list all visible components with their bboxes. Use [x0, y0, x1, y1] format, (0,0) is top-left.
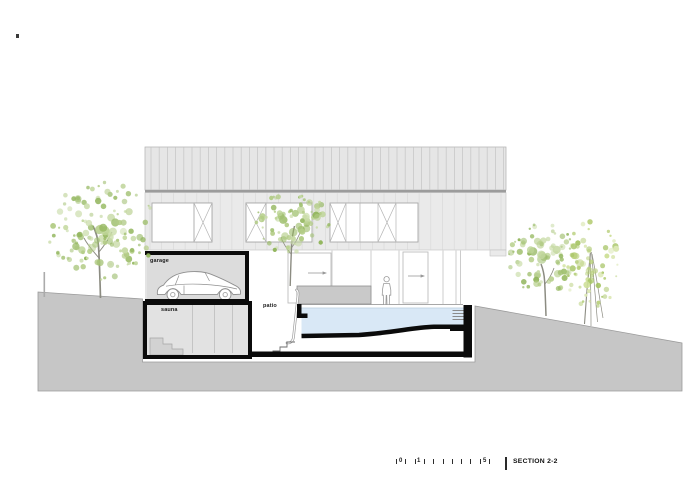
tree-foliage [124, 233, 127, 236]
tree-foliage [508, 265, 512, 269]
tree-foliage [61, 256, 65, 260]
garage-wall-right [245, 251, 249, 303]
tree-foliage [255, 221, 259, 225]
tree-foliage [116, 265, 119, 268]
tree-foliage [589, 260, 594, 265]
tree-foliage [257, 211, 259, 213]
tree-foliage [122, 247, 128, 253]
tree-foliage [584, 294, 587, 297]
tree-foliage [555, 260, 560, 265]
tree-foliage [86, 186, 90, 190]
tree-foliage [117, 213, 119, 215]
tree-foliage [56, 251, 60, 255]
tree-foliage [559, 254, 564, 259]
tree-foliage [613, 246, 619, 252]
ground-post [44, 272, 46, 297]
tree-foliage [260, 219, 263, 222]
tree-foliage [77, 232, 83, 238]
tree-foliage [570, 265, 576, 271]
ground-floor [288, 251, 463, 305]
tree-foliage [82, 219, 85, 222]
tree-foliage [48, 241, 51, 244]
tree-foliage [514, 241, 516, 243]
tree-foliage [562, 264, 565, 267]
tree-foliage [109, 263, 112, 266]
tree-foliage [529, 228, 531, 230]
tree-foliage [604, 254, 609, 259]
patio-label: patio [263, 304, 277, 310]
tree-foliage [52, 234, 56, 238]
tree-foliage [130, 248, 134, 252]
tree-foliage [290, 214, 294, 218]
scale-tick [424, 459, 425, 464]
tree-foliage [285, 223, 290, 228]
tree-foliage [520, 238, 527, 245]
tree-trunk [541, 264, 546, 316]
person-figure [382, 277, 391, 305]
tree-foliage [289, 209, 293, 213]
sliding-door-2 [403, 252, 428, 303]
tree-foliage [581, 222, 586, 227]
tree-foliage [603, 277, 606, 280]
tree-foliage [586, 246, 592, 252]
tree-foliage [576, 259, 584, 267]
tree-foliage [63, 193, 68, 198]
scale-tick [443, 459, 444, 464]
tree-foliage [274, 196, 277, 199]
section-title: SECTION 2-2 [513, 459, 558, 466]
tree-foliage [327, 223, 330, 226]
tree-foliage [299, 203, 303, 207]
tree-foliage [148, 205, 150, 207]
scale-bar: 015 [396, 455, 492, 469]
tree-foliage [73, 234, 76, 237]
tree-foliage [533, 280, 540, 287]
scale-tick [489, 459, 490, 464]
tree-foliage [126, 208, 133, 215]
tree-foliage [136, 234, 143, 241]
tree-foliage [527, 246, 534, 253]
tree-foliage [590, 271, 594, 275]
tree-foliage [508, 250, 514, 256]
tree-foliage [584, 245, 587, 248]
tree-foliage [314, 214, 321, 221]
tree-foliage [560, 234, 566, 240]
tree-foliage [267, 241, 272, 246]
scale-number: 0 [399, 458, 402, 464]
tree-foliage [75, 198, 81, 204]
tree-foliage [123, 236, 128, 241]
tree-foliage [615, 275, 617, 277]
tree-foliage [262, 226, 264, 228]
tree-foliage [587, 219, 592, 224]
tree-foliage [303, 198, 306, 201]
tree-foliage [596, 283, 601, 288]
tree-foliage [607, 230, 610, 233]
tree-foliage [274, 211, 276, 213]
tree-foliage [98, 185, 100, 187]
tree-foliage [80, 259, 84, 263]
tree-foliage [596, 304, 599, 307]
tree-foliage [574, 273, 577, 276]
tree-foliage [100, 215, 103, 218]
tree-right-1 [508, 224, 572, 317]
tree-foliage [294, 249, 298, 253]
tree-foliage [117, 220, 122, 225]
tree-foliage [270, 228, 274, 232]
tree-foliage [103, 181, 106, 184]
tree-foliage [113, 196, 117, 200]
tree-foliage [146, 253, 150, 257]
tree-foliage [586, 256, 590, 260]
tree-foliage [522, 286, 524, 288]
tree-foliage [564, 239, 569, 244]
tree-foliage [572, 232, 576, 236]
tree-foliage [603, 245, 608, 250]
tree-foliage [516, 272, 521, 277]
tree-foliage [601, 296, 603, 298]
tree-foliage [556, 286, 561, 291]
person-head [384, 277, 389, 282]
tree-foliage [84, 220, 88, 224]
tree-foliage [612, 239, 616, 243]
architectural-section-sheet: garage sauna patio 015 SECTION 2-2 [0, 0, 700, 495]
tree-foliage [529, 257, 535, 263]
tree-foliage [75, 242, 78, 245]
tree-foliage [73, 265, 79, 271]
person-body [382, 284, 391, 305]
tree-foliage [271, 205, 277, 211]
tree-foliage [537, 251, 546, 260]
tree-foliage [530, 234, 534, 238]
tree-foliage [278, 231, 281, 234]
pool-right-wall [464, 305, 473, 358]
tree-foliage [122, 253, 128, 259]
tree-foliage [510, 242, 515, 247]
scale-tick [396, 459, 397, 464]
tree-foliage [580, 238, 586, 244]
tree-foliage [308, 221, 313, 226]
tree-left [48, 181, 152, 298]
registration-mark [16, 34, 19, 38]
tree-foliage [587, 289, 591, 293]
tree-foliage [553, 246, 561, 254]
tree-foliage [319, 240, 323, 244]
tree-foliage [116, 190, 119, 193]
tree-foliage [609, 235, 611, 237]
tree-foliage [569, 238, 571, 240]
tree-foliage [561, 269, 567, 275]
scale-tick [470, 459, 471, 464]
tree-foliage [516, 261, 522, 267]
tree-foliage [58, 227, 60, 229]
tree-foliage [603, 294, 608, 299]
tree-foliage [311, 211, 313, 213]
roof-fascia-line [145, 190, 506, 193]
tree-foliage [533, 224, 536, 227]
tree-foliage [88, 244, 96, 252]
tree-foliage [585, 272, 589, 276]
tree-foliage [263, 238, 265, 240]
scale-tick [405, 459, 406, 464]
tree-foliage [521, 279, 527, 285]
title-block: 015 SECTION 2-2 [396, 455, 596, 471]
tree-foliage [306, 199, 313, 206]
tree-foliage [569, 247, 571, 249]
tree-foliage [70, 249, 74, 253]
tree-foliage [127, 264, 129, 266]
tree-foliage [63, 202, 66, 205]
tree-foliage [527, 285, 531, 289]
tree-foliage [71, 239, 74, 242]
tree-foliage [128, 229, 133, 234]
tree-foliage [89, 236, 93, 240]
tree-foliage [50, 223, 56, 229]
tree-foliage [75, 210, 82, 217]
tree-foliage [318, 201, 321, 204]
tree-foliage [138, 244, 141, 247]
tree-foliage [546, 237, 551, 242]
car-rear-wheel [219, 289, 231, 301]
tree-foliage [597, 301, 601, 305]
tree-foliage [134, 261, 138, 265]
garage-label: garage [150, 259, 169, 265]
tree-foliage [567, 274, 570, 277]
window-3 [330, 203, 418, 242]
tree-foliage [277, 210, 283, 216]
tree-foliage [582, 300, 585, 303]
basement-bottom-slab [250, 352, 472, 358]
pool-right-step [450, 325, 464, 332]
tree-foliage [67, 257, 70, 260]
scale-number: 5 [483, 458, 486, 464]
tree-foliage [286, 245, 291, 250]
scale-tick [461, 459, 462, 464]
tree-foliage [89, 213, 93, 217]
tree-foliage [84, 203, 90, 209]
tree-foliage [289, 228, 298, 237]
tree-foliage [90, 187, 95, 192]
car-front-wheel [167, 289, 179, 301]
tree-foliage [604, 287, 609, 292]
tree-foliage [551, 229, 555, 233]
tree-foliage [119, 249, 122, 252]
tree-foliage [300, 218, 305, 223]
tree-foliage [611, 255, 615, 259]
tree-foliage [299, 195, 302, 198]
facade-right-fin [490, 250, 506, 256]
tree-foliage [537, 241, 545, 249]
garage-wall-top [145, 251, 249, 255]
tree-foliage [575, 244, 579, 248]
tree-foliage [121, 184, 126, 189]
tree-foliage [518, 238, 521, 241]
tree-foliage [517, 249, 523, 255]
scale-number: 1 [417, 458, 420, 464]
tree-foliage [299, 229, 305, 235]
tree-foliage [280, 236, 286, 242]
tree-foliage [316, 226, 318, 228]
sauna-label: sauna [161, 308, 178, 314]
tree-foliage [144, 245, 149, 250]
tree-foliage [57, 208, 63, 214]
tree-foliage [527, 272, 532, 277]
tree-foliage [135, 194, 138, 197]
tree-foliage [568, 288, 571, 291]
tree-foliage [81, 264, 86, 269]
tree-foliage [103, 240, 108, 245]
tree-foliage [608, 296, 611, 299]
tree-foliage [273, 248, 277, 252]
tree-foliage [143, 220, 148, 225]
tree-foliage [589, 300, 592, 303]
tree-foliage [83, 230, 90, 237]
tree-foliage [126, 191, 131, 196]
tree-foliage [600, 263, 605, 268]
tree-foliage [64, 217, 67, 220]
tree-foliage [588, 228, 590, 230]
scale-tick [480, 459, 481, 464]
tree-foliage [579, 286, 582, 289]
tree-foliage [536, 263, 539, 266]
tree-foliage [67, 206, 72, 211]
tree-foliage [566, 265, 570, 269]
tree-foliage [131, 236, 137, 242]
tree-foliage [299, 236, 304, 241]
tree-foliage [549, 276, 554, 281]
tree-foliage [260, 213, 265, 218]
building-section [145, 147, 506, 358]
tree-foliage [564, 274, 566, 276]
tree-foliage [551, 224, 555, 228]
tree-foliage [66, 229, 69, 232]
tree-foliage [81, 250, 85, 254]
scale-tick [452, 459, 453, 464]
scale-tick [433, 459, 434, 464]
tree-foliage [112, 273, 118, 279]
tree-foliage [101, 204, 107, 210]
tree-foliage [97, 259, 104, 266]
title-divider [505, 457, 507, 470]
tree-foliage [570, 253, 575, 258]
tree-foliage [291, 236, 296, 241]
bench-counter [297, 286, 371, 304]
pool-section [250, 304, 472, 358]
tree-foliage [265, 216, 268, 219]
tree-foliage [588, 277, 594, 283]
tree-foliage [566, 233, 569, 236]
tree-foliage [138, 251, 141, 254]
tree-foliage [279, 216, 287, 224]
tree-foliage [99, 224, 107, 232]
tree-foliage [122, 199, 128, 205]
tree-foliage [103, 276, 106, 279]
tree-foliage [616, 264, 618, 266]
tree-foliage [310, 233, 314, 237]
tree-foliage [537, 270, 540, 273]
tree-foliage [104, 189, 110, 195]
roof-band [145, 147, 506, 190]
tree-foliage [100, 278, 102, 280]
tree-foliage [569, 283, 573, 287]
section-drawing [0, 0, 700, 495]
tree-foliage [86, 257, 89, 260]
tree-foliage [113, 210, 116, 213]
tree-foliage [148, 206, 151, 209]
tree-foliage [297, 206, 305, 214]
tree-foliage [577, 266, 581, 270]
tree-foliage [100, 242, 103, 245]
tree-foliage [95, 198, 101, 204]
scale-tick [415, 459, 416, 464]
tree-foliage [113, 240, 121, 248]
tree-foliage [598, 272, 604, 278]
tree-foliage [269, 196, 273, 200]
